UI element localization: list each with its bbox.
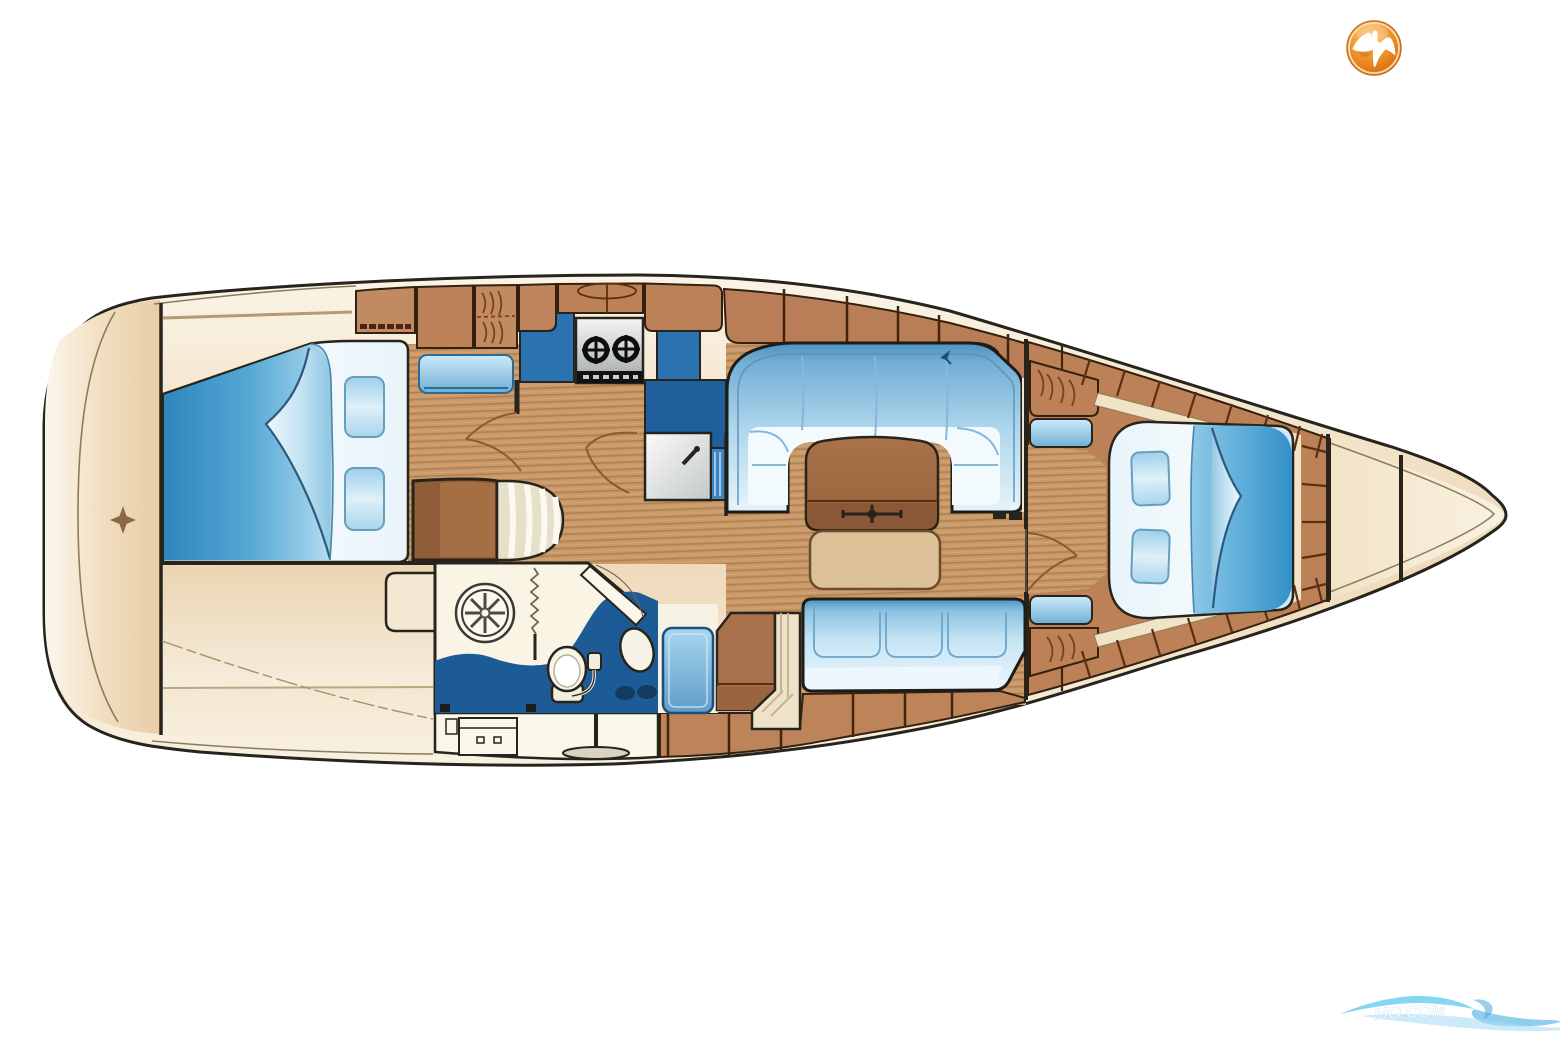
svg-text:MO.COM: MO.COM — [1373, 1001, 1447, 1024]
